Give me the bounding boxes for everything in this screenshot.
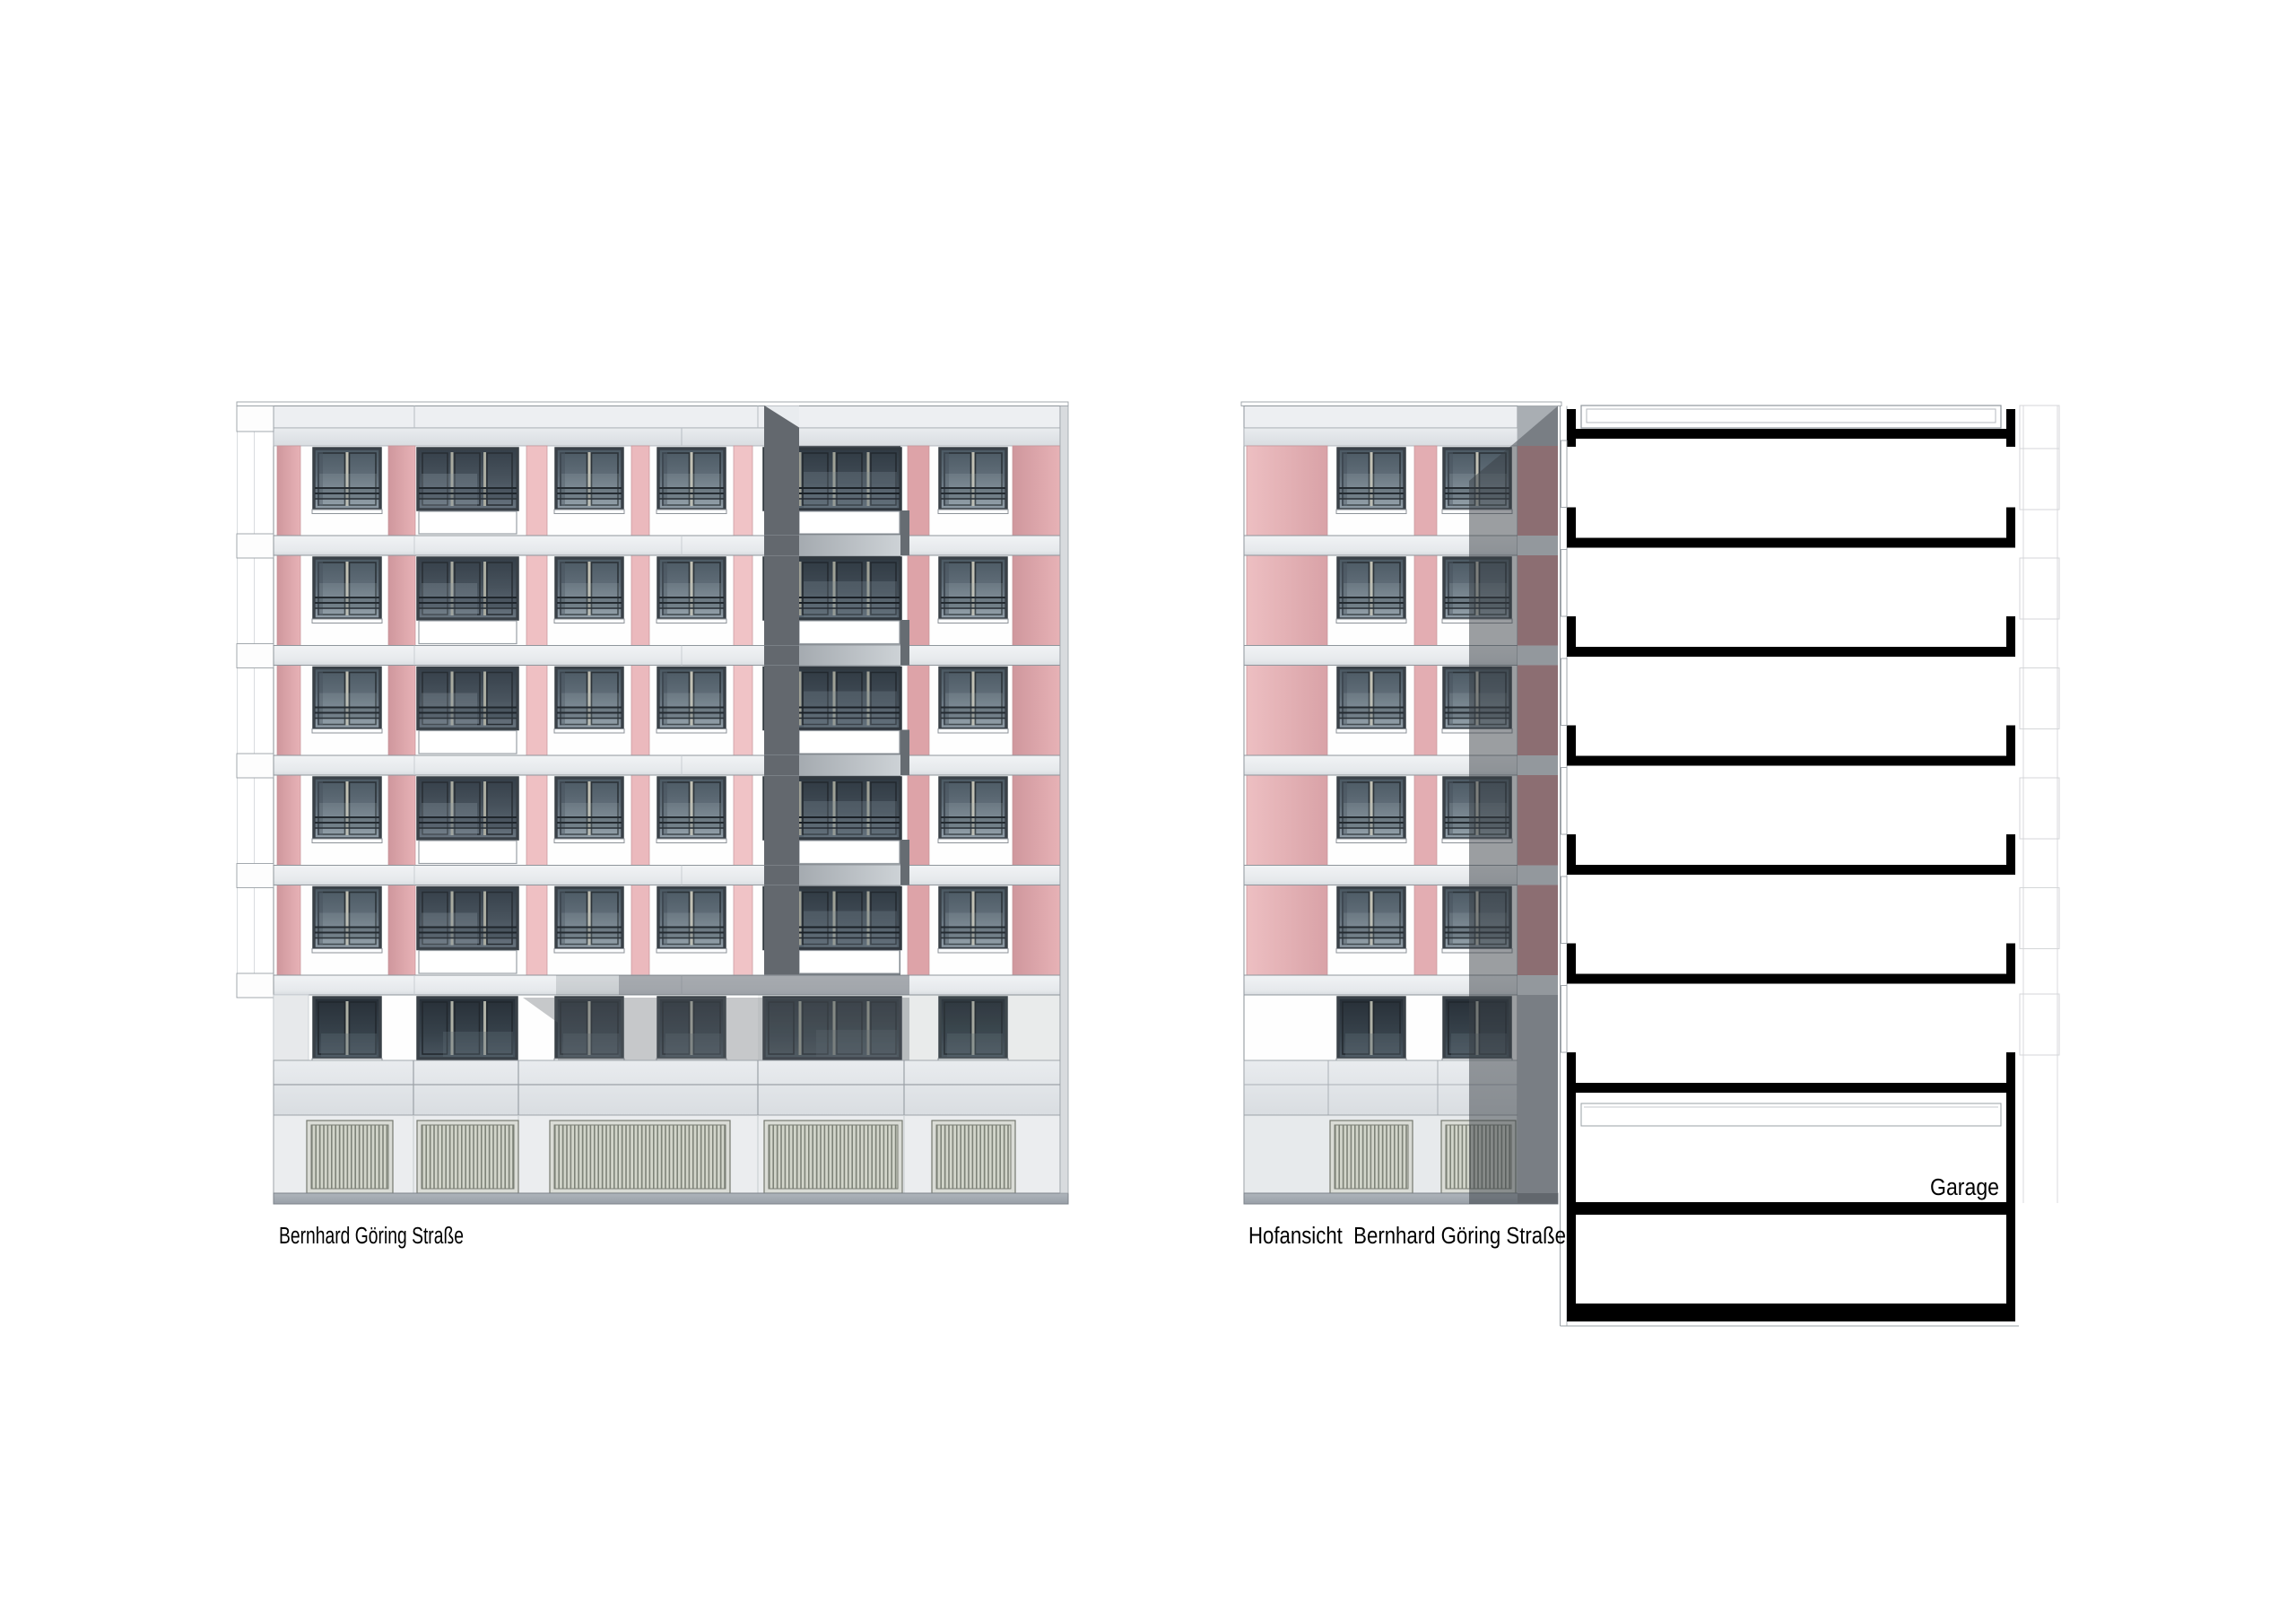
svg-text:Bernhard Göring Straße: Bernhard Göring Straße bbox=[279, 1224, 464, 1249]
svg-text:Garage: Garage bbox=[1930, 1175, 1999, 1200]
svg-text:Hofansicht Bernhard Göring St: Hofansicht Bernhard Göring Straße bbox=[1248, 1224, 1566, 1249]
